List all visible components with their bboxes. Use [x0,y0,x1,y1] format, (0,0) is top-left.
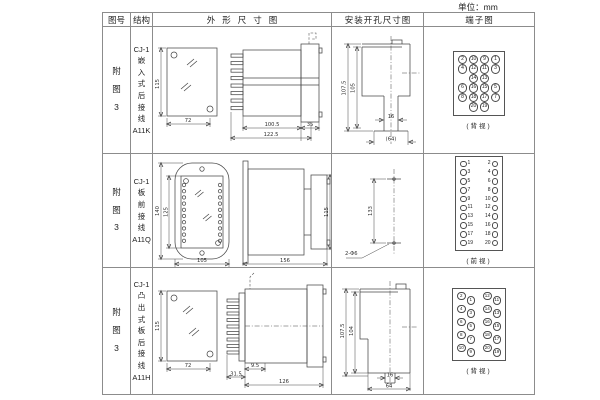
terminal-number-20: 20 [484,241,492,246]
terminal-pair: 109 [457,344,475,357]
terminal-number-17: 17 [467,232,475,237]
terminal-number-4: 4 [487,170,492,175]
terminal-diagram-2: 1234567891011121314151617181920 (前视) [424,154,534,268]
terminal-pin-4: 4 [458,64,468,74]
front-view: 115 72 [155,291,217,372]
terminal-grid-3: 2143658710912111413161518172019 [452,288,506,361]
terminal-pin-3: 3 [467,309,476,318]
terminal-pin- [492,187,499,194]
terminal-number-12: 12 [484,205,492,210]
terminal-pin- [492,178,499,185]
dim-outer-height: 107.5 [340,324,346,339]
drill-holes: 133 2-Φ6 [345,169,401,258]
terminal-number-2: 2 [487,161,492,166]
terminal-grid-1: 2109141211314136161558181772019 [453,51,506,116]
terminal-group: 21436587109 [457,292,475,357]
dim-inner-height: 104 [349,325,355,336]
terminal-spacer [458,74,468,84]
terminal-pin-9: 9 [480,55,490,65]
terminal-pin-20: 20 [469,102,479,112]
terminal-row: 910 [460,195,498,204]
dim-front-width: 72 [185,363,192,369]
dim-front-height: 115 [155,79,161,89]
terminal-pin-10: 10 [469,55,479,65]
terminal-pin-2: 2 [457,292,466,301]
terminal-pin-5: 5 [491,83,501,93]
terminal-pin-19: 19 [493,348,502,357]
dim-overall-length: 126 [279,379,289,385]
terminal-number-13: 13 [467,214,475,219]
dim-front-width: 105 [197,258,207,264]
structure-label-2: CJ-1 板 前 接 线 A11Q [131,154,153,268]
terminal-pair: 1817 [483,331,501,344]
terminal-row: 21091 [458,55,501,65]
terminal-number-19: 19 [467,241,475,246]
header-terminal-col: 端子图 [424,13,534,27]
terminal-row: 412113 [458,64,501,74]
structure-label-3: CJ-1 凸 出 式 板 后 接 线 A11H [131,268,153,394]
outline-drawing-2: 140 125 105 156 115 [153,154,332,268]
outline-drawing-1: 115 72 100.5 35 122.5 [153,27,332,154]
terminal-row: 34 [460,168,498,177]
cutout-profile: 107.5 104 16 64 [340,281,418,391]
dim-body-length: 156 [280,258,290,264]
mounting-svg-1: 107.5 105 16 (64) [332,28,423,153]
terminal-number-16: 16 [484,223,492,228]
terminal-pair: 65 [457,318,475,331]
terminal-pin-12: 12 [469,64,479,74]
terminal-spacer [491,102,501,112]
terminal-number-18: 18 [484,232,492,237]
terminal-pin-7: 7 [467,335,476,344]
header-structure-col: 结构 [131,13,153,27]
terminal-pin-7: 7 [491,93,501,103]
terminal-pin-14: 14 [469,74,479,84]
terminal-pin-11: 11 [480,64,490,74]
mounting-svg-3: 107.5 104 16 64 [332,269,423,393]
terminal-row: 1718 [460,230,498,239]
terminal-pin-17: 17 [493,335,502,344]
terminal-pin- [492,213,499,220]
terminal-number-8: 8 [487,188,492,193]
terminal-pin-11: 11 [493,296,502,305]
mounting-svg-2: 133 2-Φ6 [332,155,423,267]
terminal-row: 12 [460,160,498,169]
terminal-pin-13: 13 [493,309,502,318]
header-figure-col: 图号 [103,13,131,27]
terminal-row: 2019 [458,102,501,112]
terminal-pin-15: 15 [493,322,502,331]
terminal-row: 78 [460,186,498,195]
dim-bottom-width: 64 [386,384,393,390]
terminal-spacer [458,102,468,112]
terminal-row: 1920 [460,239,498,248]
dim-holes-label: 2-Φ6 [345,251,358,257]
terminal-number-6: 6 [487,179,492,184]
front-view: 140 125 105 [155,163,229,267]
terminal-pair: 1211 [483,292,501,305]
terminal-pair: 1615 [483,318,501,331]
terminal-pin-10: 10 [457,344,466,353]
terminal-pin-2: 2 [458,55,468,65]
terminal-view-label-2: (前视) [466,255,491,265]
terminal-pin- [492,169,499,176]
terminal-number-10: 10 [484,197,492,202]
dim-front-height: 115 [155,321,161,331]
terminal-pair: 87 [457,331,475,344]
terminal-pin-6: 6 [458,83,468,93]
terminal-pin-5: 5 [467,322,476,331]
mounting-drawing-2: 133 2-Φ6 [332,154,424,268]
dim-slot-width: 16 [387,373,394,379]
terminal-pin-1: 1 [491,55,501,65]
terminal-pin-15: 15 [480,83,490,93]
header-mounting-col: 安装开孔尺寸图 [332,13,424,27]
terminal-row: 1314 [460,212,498,221]
dim-inner-height: 125 [164,207,170,217]
terminal-pin-16: 16 [469,83,479,93]
terminal-pin- [492,161,499,168]
dim-slot-width: 16 [388,114,395,120]
side-view: 156 115 [243,161,331,266]
terminal-view-label-3: (背视) [466,365,491,375]
terminal-pin-9: 9 [467,348,476,357]
mounting-drawing-1: 107.5 105 16 (64) [332,27,424,154]
terminal-number-5: 5 [467,179,472,184]
structure-label-1: CJ-1 嵌 入 式 后 接 线 A11K [131,27,153,154]
side-view: 100.5 35 122.5 [231,33,322,141]
terminal-row: 616155 [458,83,501,93]
terminal-number-3: 3 [467,170,472,175]
terminal-diagram-1: 2109141211314136161558181772019 (背视) [424,27,534,154]
spec-table: 图号 结构 外形尺寸图 安装开孔尺寸图 端子图 附 图 3 CJ-1 嵌 入 式… [102,12,535,395]
figure-label-2: 附 图 3 [103,154,131,268]
terminal-number-11: 11 [467,205,474,210]
terminal-pin-18: 18 [469,93,479,103]
terminal-pin-20: 20 [483,344,492,353]
terminal-number-14: 14 [484,214,492,219]
terminal-group: 12111413161518172019 [483,292,501,357]
figure-label-1: 附 图 3 [103,27,131,154]
dim-stud-length: 31.5 [230,372,242,378]
terminal-pin-12: 12 [483,292,492,301]
dim-inner-height: 105 [351,83,357,93]
front-view: 115 72 [155,48,217,127]
outline-svg-2: 140 125 105 156 115 [153,155,331,267]
terminal-pin-19: 19 [480,102,490,112]
terminal-pin-13: 13 [480,74,490,84]
terminal-pin-14: 14 [483,305,492,314]
dim-body-height: 115 [324,207,330,217]
dim-bezel-depth: 35 [307,122,314,128]
dim-body-depth: 100.5 [265,122,280,128]
terminal-pin- [492,196,499,203]
terminal-number-15: 15 [467,223,475,228]
terminal-pair: 21 [457,292,475,305]
cutout-profile: 107.5 105 16 (64) [342,36,421,145]
terminal-row: 818177 [458,93,501,103]
terminal-pair: 43 [457,305,475,318]
side-view: 9.5 31.5 126 [227,273,326,388]
dim-outer-height: 107.5 [342,80,348,95]
outline-svg-1: 115 72 100.5 35 122.5 [153,28,331,153]
terminal-pin-18: 18 [483,331,492,340]
terminal-pin-17: 17 [480,93,490,103]
figure-label-3: 附 图 3 [103,268,131,394]
terminal-pin-4: 4 [457,305,466,314]
mounting-drawing-3: 107.5 104 16 64 [332,268,424,394]
terminal-pin- [492,222,499,229]
terminal-pin- [492,231,499,238]
outline-svg-3: 115 72 9.5 31.5 126 [153,269,331,393]
terminal-row: 1516 [460,221,498,230]
terminal-row: 1112 [460,204,498,213]
terminal-row: 56 [460,177,498,186]
terminal-stagger-wrap: 2143658710912111413161518172019 [457,292,501,357]
dim-front-height: 140 [155,206,161,216]
terminal-pin- [492,240,499,247]
terminal-pin-8: 8 [457,331,466,340]
terminal-pin-16: 16 [483,318,492,327]
header-outline-col: 外形尺寸图 [153,13,332,27]
terminal-pin-3: 3 [491,64,501,74]
terminal-number-7: 7 [467,188,472,193]
terminal-view-label-1: (背视) [466,120,491,130]
terminal-pin- [492,205,499,212]
terminal-number-9: 9 [467,197,472,202]
terminal-spacer [491,74,501,84]
terminal-diagram-3: 2143658710912111413161518172019 (背视) [424,268,534,394]
terminal-row: 1413 [458,74,501,84]
terminal-pin-6: 6 [457,318,466,327]
dim-overall-depth: 122.5 [264,132,279,138]
terminal-grid-2: 1234567891011121314151617181920 [455,156,503,252]
outline-drawing-3: 115 72 9.5 31.5 126 [153,268,332,394]
dim-hole-span: 133 [368,206,374,216]
terminal-pair: 1413 [483,305,501,318]
terminal-pin-8: 8 [458,93,468,103]
terminal-number-1: 1 [467,161,472,166]
dim-front-depth: 9.5 [251,363,259,369]
terminal-pin-1: 1 [467,296,476,305]
dim-front-width: 72 [185,118,192,124]
terminal-pair: 2019 [483,344,501,357]
dim-bottom-width: (64) [386,136,397,142]
